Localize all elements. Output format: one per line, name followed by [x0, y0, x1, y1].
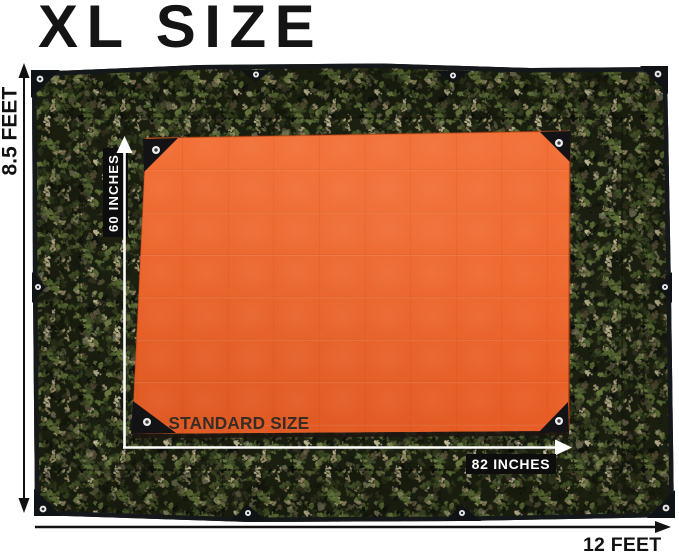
svg-text:60 INCHES: 60 INCHES — [106, 154, 121, 232]
svg-text:8.5 FEET: 8.5 FEET — [0, 87, 22, 176]
svg-text:XL SIZE: XL SIZE — [38, 0, 323, 60]
svg-text:12 FEET: 12 FEET — [583, 534, 661, 553]
svg-text:82 INCHES: 82 INCHES — [472, 456, 551, 472]
svg-text:STANDARD SIZE: STANDARD SIZE — [169, 413, 310, 433]
